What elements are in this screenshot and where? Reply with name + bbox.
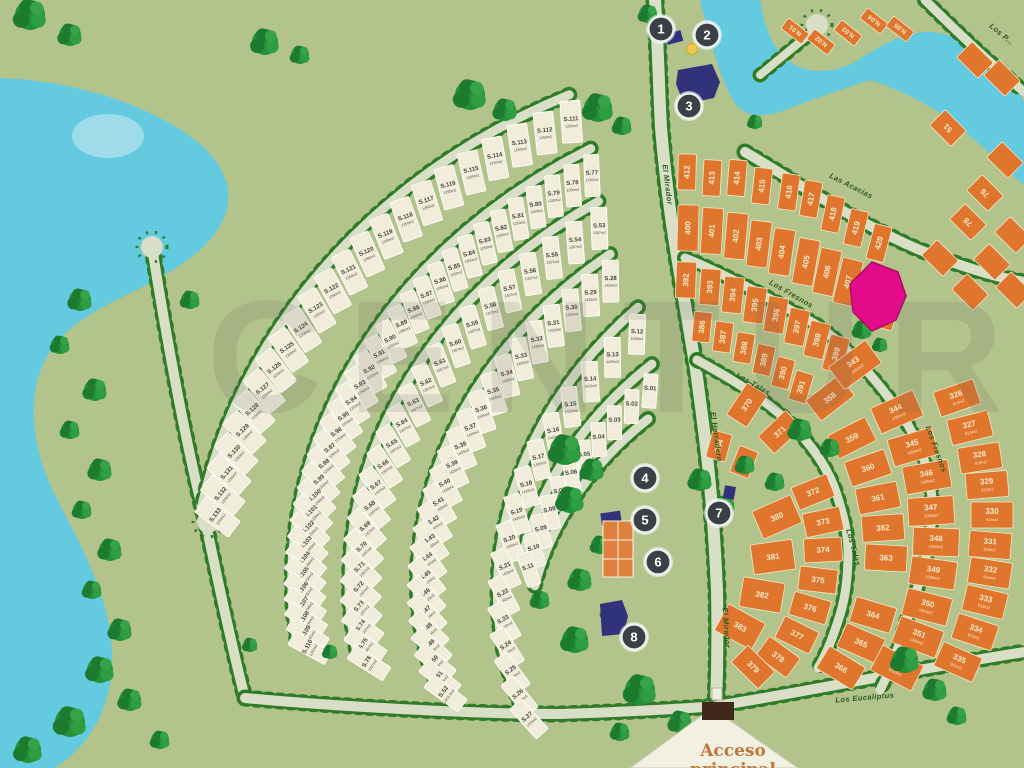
building	[723, 485, 736, 500]
map-marker-7[interactable]: 7	[704, 498, 734, 528]
lot-label: 401	[707, 224, 717, 238]
map-marker-2[interactable]: 2	[692, 20, 722, 50]
lot-N.04[interactable]: N.04	[860, 8, 888, 34]
lot-78[interactable]: 78	[950, 204, 987, 241]
lot-401[interactable]: 401	[700, 207, 724, 254]
tree-cluster	[180, 291, 200, 309]
lot-number: 415	[757, 178, 767, 193]
tree-cluster	[567, 568, 591, 591]
lot-333[interactable]: 333913m2	[962, 584, 1009, 619]
street-label-los-p-: Los P...	[988, 21, 1016, 46]
lot-S.80[interactable]: S.801250m2	[526, 185, 547, 229]
lot-area: 1050m2	[924, 512, 940, 518]
entrance-label: Acceso principal	[690, 741, 776, 768]
tree-cluster	[117, 688, 141, 711]
lot-380[interactable]: 380	[752, 495, 803, 539]
lot-number: S.78	[566, 180, 579, 187]
lot-unlabeled[interactable]	[995, 217, 1024, 254]
entrance-gate	[702, 702, 734, 720]
lot-label: 362	[876, 523, 890, 533]
lot-number: 381	[766, 552, 781, 563]
lot-S.114[interactable]: S.1141250m2	[481, 136, 508, 181]
lot-334[interactable]: 334913m2	[951, 613, 999, 651]
tree-cluster	[72, 501, 92, 519]
lot-label: 331913m2	[983, 536, 998, 552]
lot-area: 913m2	[986, 517, 999, 522]
lot-S.77[interactable]: S.771250m2	[583, 154, 600, 197]
lot-label: 330913m2	[985, 507, 999, 522]
lot-label: 375	[811, 575, 826, 586]
lot-335[interactable]: 335913m2	[934, 642, 983, 683]
lot-area: 1050m2	[929, 544, 944, 550]
site-map: S.1111250m2S.1121250m2S.1131250m2S.11412…	[0, 0, 1024, 768]
lot-S.112[interactable]: S.1121250m2	[533, 111, 557, 155]
watermark-text: CENTUR	[207, 267, 1024, 446]
lot-number: 330	[985, 507, 999, 516]
lot-number: S.53	[593, 223, 606, 229]
lot-shape	[995, 217, 1024, 254]
tree-cluster	[610, 723, 630, 741]
culdesac	[141, 236, 163, 258]
map-marker-5[interactable]: 5	[630, 505, 660, 535]
tree-cluster	[60, 421, 80, 439]
lot-number: 348	[929, 534, 943, 544]
tree-cluster	[290, 46, 310, 64]
lot-number: 400	[683, 221, 692, 235]
lot-329[interactable]: 329913m2	[965, 470, 1009, 499]
water-river-west	[0, 78, 228, 768]
lot-number: 402	[731, 228, 741, 243]
lot-N.03[interactable]: N.03	[834, 20, 862, 46]
lot-label: 363	[879, 553, 893, 563]
amenity-dot	[687, 44, 698, 55]
lot-402[interactable]: 402	[724, 212, 749, 260]
lot-413[interactable]: 413	[702, 160, 722, 197]
lot-S.113[interactable]: S.1131250m2	[507, 123, 533, 167]
marker-number: 7	[715, 506, 722, 521]
tree-cluster	[97, 538, 121, 561]
lot-S.54[interactable]: S.541307m2	[566, 221, 585, 264]
lot-412[interactable]: 412	[678, 154, 697, 190]
marker-number: 2	[703, 28, 710, 43]
tree-cluster	[747, 115, 762, 129]
tree-cluster	[87, 458, 111, 481]
tree-cluster	[13, 0, 46, 30]
lot-360[interactable]: 360	[844, 449, 892, 487]
lot-328[interactable]: 328913m2	[957, 442, 1003, 474]
tree-cluster	[765, 473, 785, 491]
lot-332[interactable]: 332913m2	[967, 557, 1013, 589]
lot-S.81[interactable]: S.811250m2	[508, 197, 530, 241]
lot-label: 402	[731, 228, 741, 243]
lot-403[interactable]: 403	[746, 220, 772, 268]
lot-number: S.77	[586, 170, 599, 177]
lot-S.115[interactable]: S.1151250m2	[457, 150, 486, 195]
lot-348[interactable]: 3481050m2	[912, 527, 959, 557]
lot-349[interactable]: 3491050m2	[908, 556, 957, 590]
lot-label: 414	[732, 170, 742, 185]
tree-cluster	[242, 638, 257, 652]
entrance-label-line1: Acceso	[699, 741, 766, 761]
tree-cluster	[57, 23, 81, 46]
tree-cluster	[250, 28, 279, 55]
lot-number: 401	[707, 224, 717, 238]
site-map-page: S.1111250m2S.1121250m2S.1131250m2S.11412…	[0, 0, 1024, 768]
map-marker-1[interactable]: 1	[646, 14, 676, 44]
lot-number: 414	[732, 170, 742, 185]
lot-374[interactable]: 374	[803, 537, 842, 563]
marker-number: 8	[630, 630, 637, 645]
tree-cluster	[82, 378, 106, 401]
lot-S.78[interactable]: S.781250m2	[564, 164, 582, 207]
lot-area: 913m2	[981, 486, 994, 492]
lot-area: 1307m2	[593, 231, 606, 235]
lot-label: 374	[816, 545, 830, 555]
lot-label: 412	[682, 165, 691, 179]
entrance-label-line2: principal	[690, 760, 776, 768]
lot-376[interactable]: 376	[788, 591, 831, 625]
lot-area: 913m2	[983, 547, 996, 553]
lot-label: 413	[707, 171, 717, 185]
tree-cluster	[150, 731, 170, 749]
lot-S.111[interactable]: S.1111250m2	[560, 100, 583, 143]
tree-cluster	[687, 468, 711, 491]
tree-cluster	[560, 626, 589, 653]
tree-cluster	[492, 98, 516, 121]
lot-number: 413	[707, 171, 717, 185]
tree-cluster	[453, 79, 486, 110]
lot-label: 3481050m2	[929, 534, 945, 550]
lot-number: 331	[983, 536, 998, 546]
lot-372[interactable]: 372	[791, 474, 835, 510]
water-pond	[72, 114, 144, 158]
lot-label: 400	[683, 221, 692, 235]
lot-330[interactable]: 330913m2	[971, 502, 1013, 528]
map-marker-8[interactable]: 8	[619, 622, 649, 652]
lot-76[interactable]: 76	[967, 175, 1004, 212]
lot-label: 415	[757, 178, 767, 193]
lot-label: 3491050m2	[925, 564, 942, 581]
lot-373[interactable]: 373	[802, 506, 844, 537]
lot-362[interactable]: 362	[861, 514, 905, 543]
map-marker-4[interactable]: 4	[630, 463, 660, 493]
tree-cluster	[623, 674, 656, 705]
lot-382[interactable]: 382	[739, 577, 785, 614]
lot-number: 347	[924, 503, 938, 513]
tree-cluster	[582, 93, 613, 122]
lot-label: 403	[754, 236, 765, 251]
lot-347[interactable]: 3471050m2	[907, 496, 955, 527]
marker-number: 4	[641, 471, 649, 486]
lot-number: 362	[876, 523, 890, 533]
marker-number: 1	[657, 22, 664, 37]
marker-number: 6	[654, 555, 661, 570]
lot-number: 412	[682, 165, 691, 179]
lot-361[interactable]: 361	[855, 481, 901, 515]
lot-number: 375	[811, 575, 826, 586]
lot-415[interactable]: 415	[751, 167, 773, 205]
lot-number: 363	[879, 553, 893, 563]
lot-number: 403	[754, 236, 765, 251]
lot-area: 1250m2	[586, 178, 599, 183]
lot-label: 3471050m2	[923, 503, 939, 519]
lot-S.53[interactable]: S.531307m2	[591, 207, 608, 250]
lot-S.79[interactable]: S.791250m2	[544, 174, 563, 217]
lot-375[interactable]: 375	[798, 566, 839, 594]
lot-label: 329913m2	[980, 476, 995, 492]
lot-363[interactable]: 363	[864, 544, 907, 572]
map-marker-3[interactable]: 3	[674, 91, 704, 121]
lot-414[interactable]: 414	[727, 159, 748, 196]
marker-number: 5	[641, 513, 648, 528]
lot-label: 381	[766, 552, 781, 563]
tree-cluster	[922, 678, 946, 701]
lot-331[interactable]: 331913m2	[968, 530, 1012, 559]
gate-booth	[712, 688, 722, 700]
lot-number: 374	[816, 545, 830, 555]
marker-number: 3	[685, 99, 692, 114]
lot-S.116[interactable]: S.1161250m2	[434, 164, 464, 210]
sports-courts	[603, 521, 633, 577]
lot-400[interactable]: 400	[677, 205, 699, 252]
tree-cluster	[947, 707, 967, 725]
map-marker-6[interactable]: 6	[643, 547, 673, 577]
street-label-los-eucaliptus: Los Eucaliptus	[835, 690, 895, 704]
lot-number: S.111	[563, 116, 579, 123]
tree-cluster	[612, 117, 632, 135]
lot-381[interactable]: 381	[750, 539, 796, 575]
lot-number: 329	[980, 476, 995, 486]
lot-number: S.54	[569, 237, 582, 244]
tree-cluster	[107, 618, 131, 641]
